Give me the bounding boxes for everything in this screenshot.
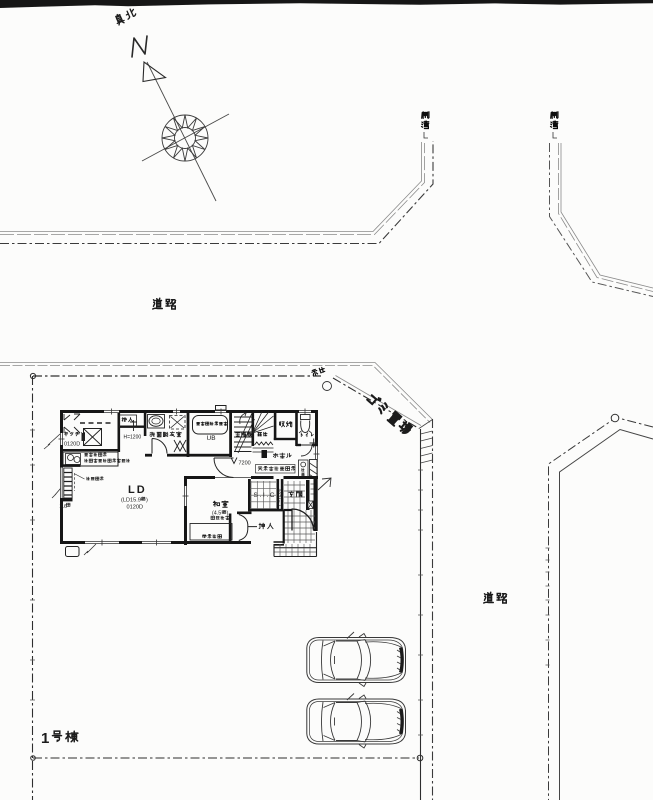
svg-text:7200: 7200 <box>239 461 251 467</box>
svg-text:0120D: 0120D <box>127 505 143 511</box>
svg-text:1: 1 <box>41 730 49 747</box>
svg-text:(4.5: (4.5 <box>212 511 221 517</box>
svg-text:P=7200: P=7200 <box>277 488 283 506</box>
svg-text:): ) <box>146 498 148 504</box>
svg-text:2.6: 2.6 <box>60 504 68 510</box>
svg-text:H=1200: H=1200 <box>124 435 142 441</box>
svg-text:LD: LD <box>128 484 147 496</box>
svg-text:0120D: 0120D <box>64 442 80 448</box>
svg-text:UB: UB <box>207 435 216 442</box>
svg-text:(LD15.9: (LD15.9 <box>121 498 141 504</box>
svg-text:S.I.C: S.I.C <box>254 492 277 499</box>
